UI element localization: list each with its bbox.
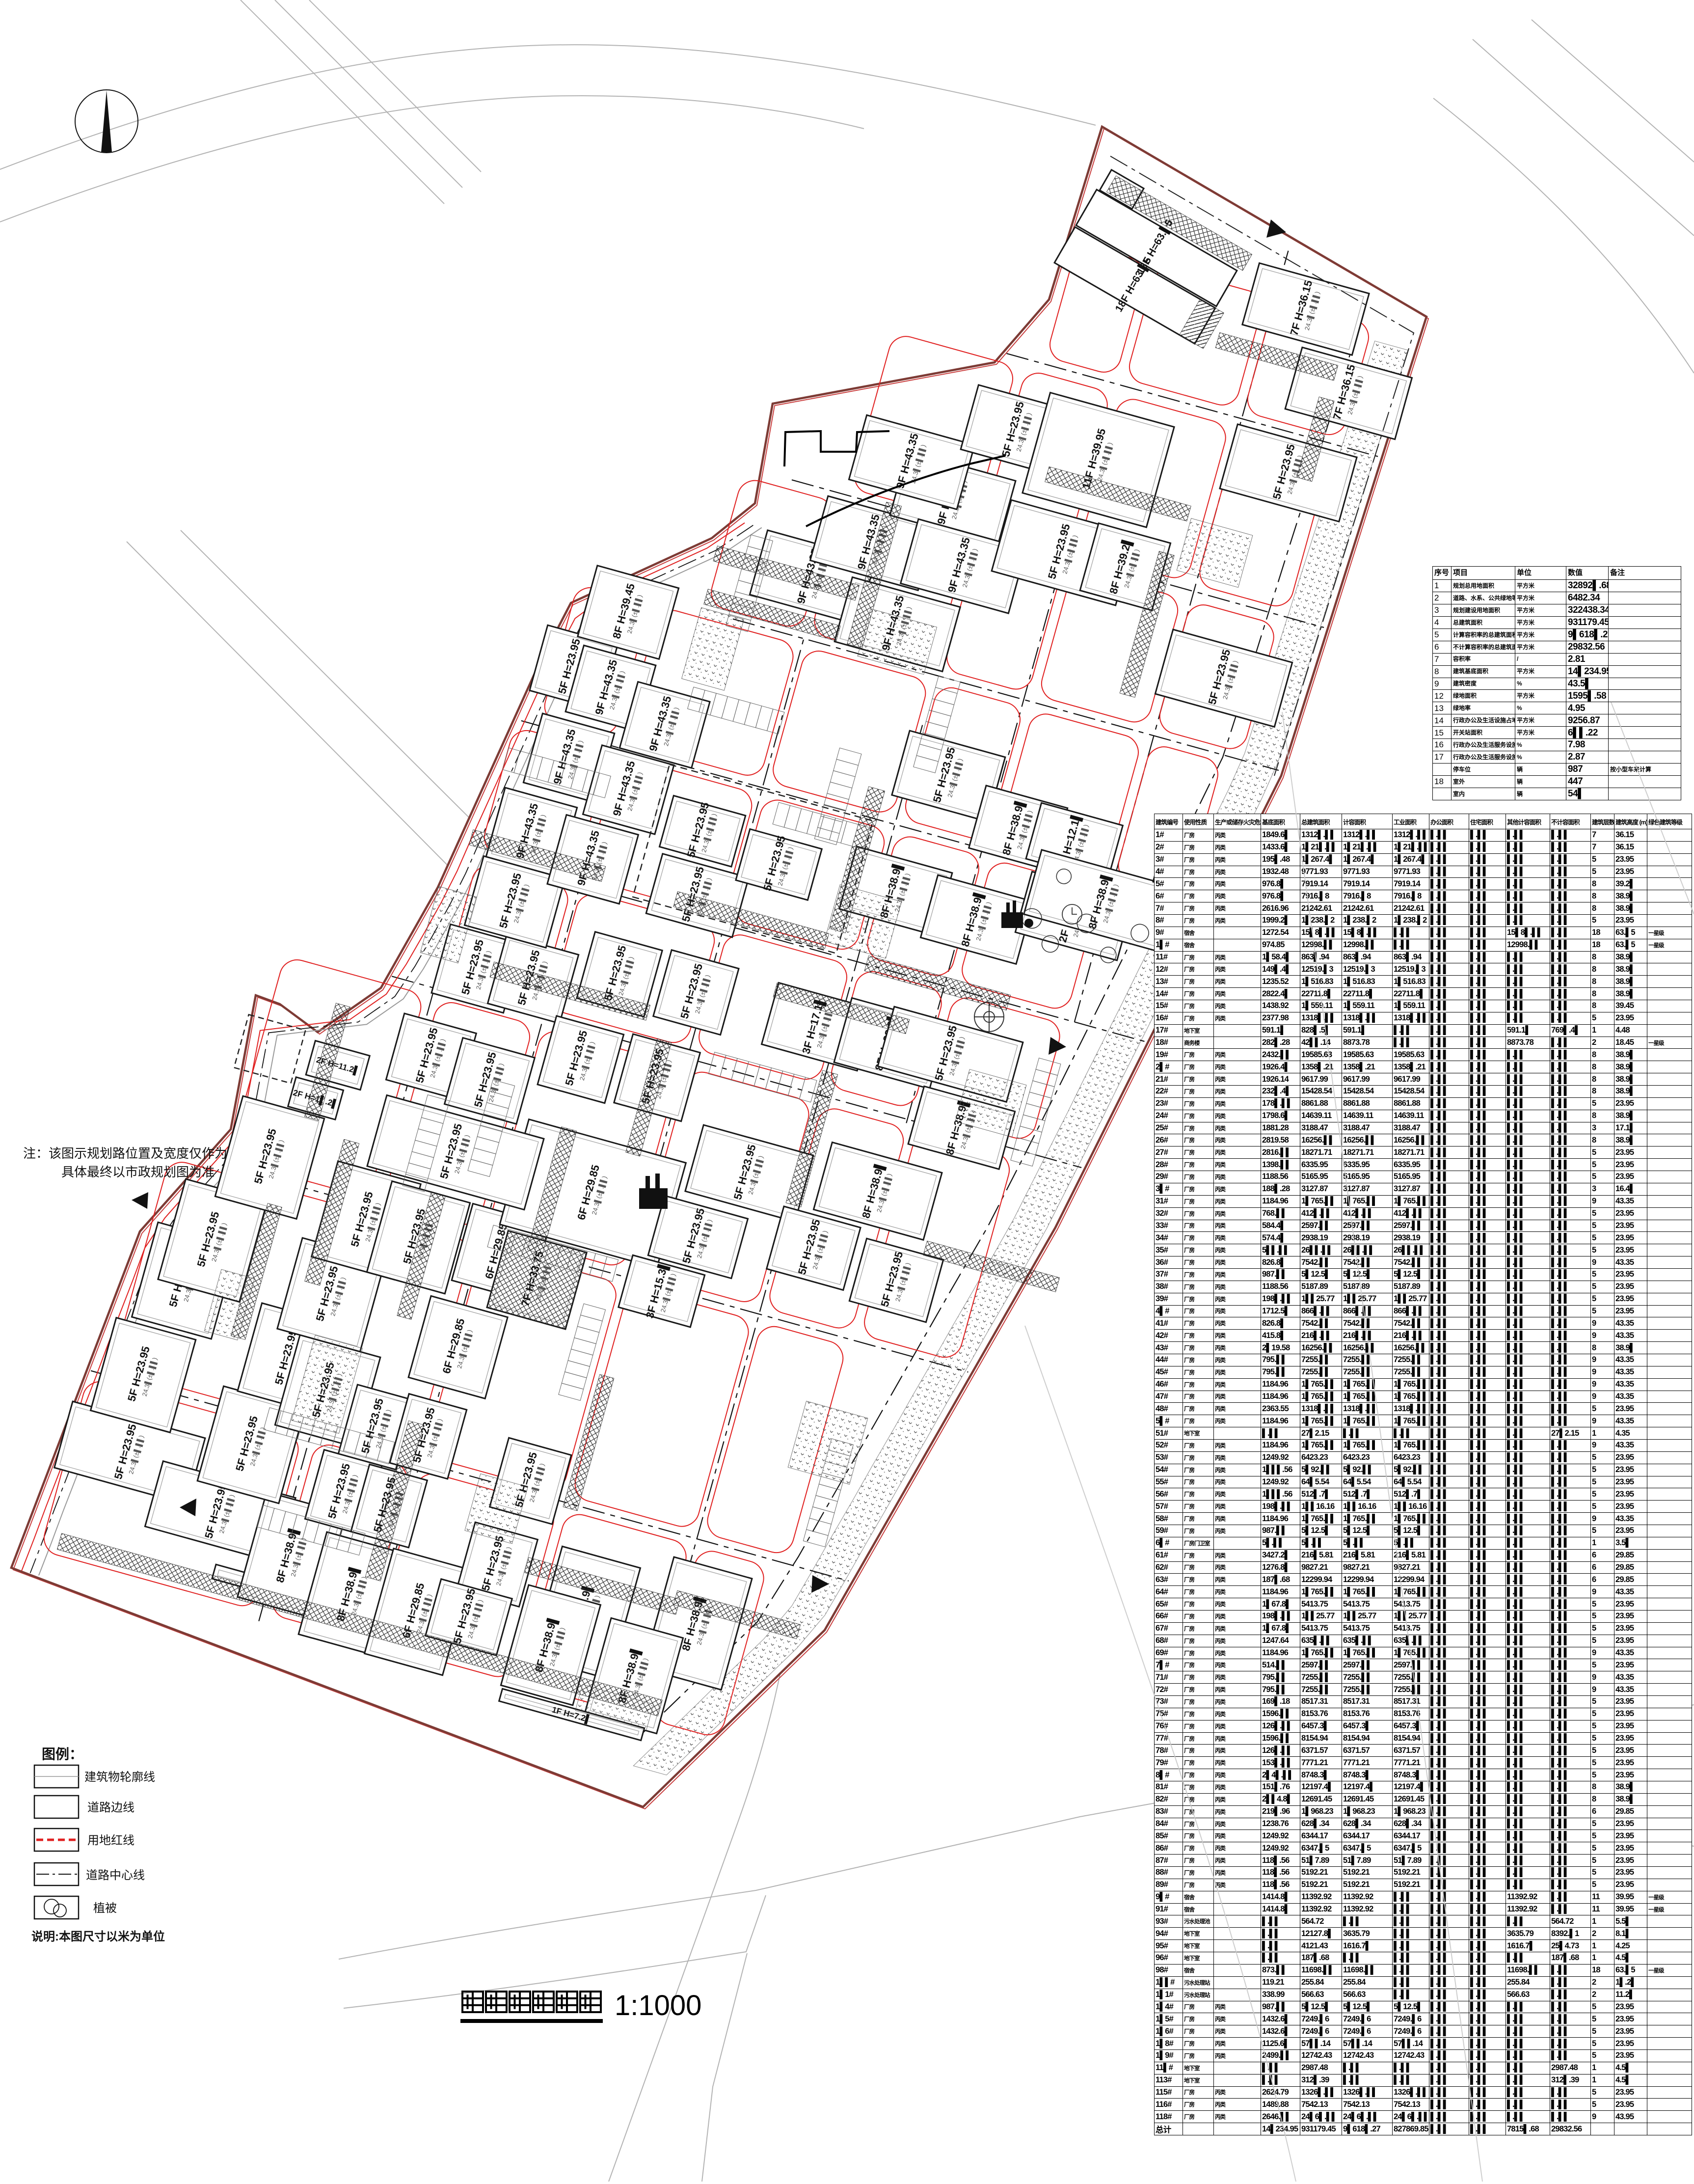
svg-text:道路中心线: 道路中心线	[86, 1869, 145, 1882]
svg-text:具体最终以市政规划图为准: 具体最终以市政规划图为准	[61, 1165, 215, 1179]
svg-text:道路边线: 道路边线	[87, 1801, 134, 1814]
svg-text:1:1000: 1:1000	[615, 1990, 701, 2021]
svg-text:说明:本图尺寸以米为单位: 说明:本图尺寸以米为单位	[31, 1930, 165, 1943]
svg-text:植被: 植被	[93, 1902, 117, 1915]
svg-text:注：该图示规划路位置及宽度仅作为: 注：该图示规划路位置及宽度仅作为	[23, 1146, 227, 1161]
svg-text:建筑物轮廓线: 建筑物轮廓线	[84, 1771, 155, 1784]
svg-text:图例：: 图例：	[42, 1747, 83, 1762]
svg-text:用地红线: 用地红线	[87, 1834, 134, 1847]
